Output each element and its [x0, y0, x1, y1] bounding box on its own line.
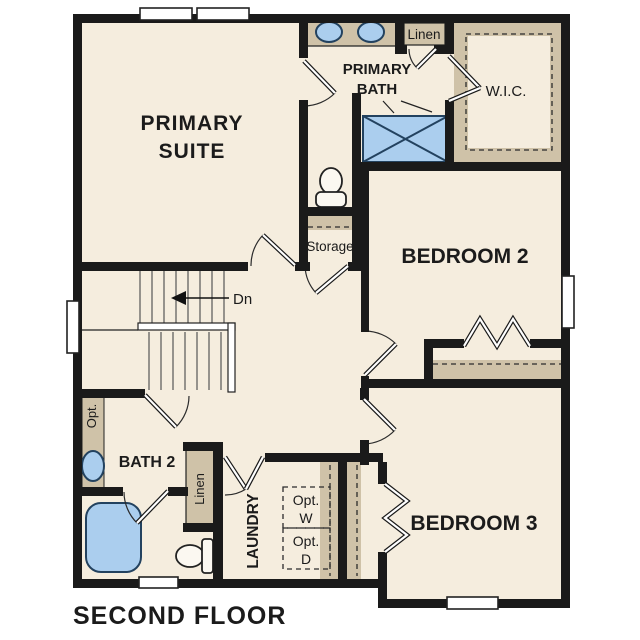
- stair-railing-top: [138, 323, 235, 330]
- wic-label: W.I.C.: [486, 83, 527, 100]
- laundry-label: LAUNDRY: [245, 493, 262, 569]
- linen-top-label: Linen: [407, 27, 440, 42]
- shower: [363, 116, 448, 162]
- window-stair-landing: [67, 301, 79, 353]
- laundry-shelf: [320, 462, 338, 579]
- storage-shelf: [308, 216, 352, 230]
- window-bedroom3: [447, 597, 498, 609]
- primary-bath-label-line1: PRIMARY: [343, 61, 412, 78]
- primary-suite-label-line2: SUITE: [159, 140, 226, 163]
- primary-bath-label-line2: BATH: [357, 81, 398, 98]
- primary-bath-sink-right: [358, 22, 384, 42]
- floor-title: SECOND FLOOR: [73, 602, 286, 630]
- bath2-vanity-opt-label: Opt.: [84, 404, 99, 429]
- stair-railing-side: [228, 323, 235, 392]
- bedroom2-closet-shelf: [433, 360, 561, 379]
- optional-dryer-label-line2: D: [301, 551, 311, 567]
- bedroom3-closet-shelf: [347, 462, 361, 579]
- stairs-down-label: Dn: [233, 291, 252, 308]
- linen-hall-label: Linen: [192, 473, 207, 505]
- primary-bath-sink-left: [316, 22, 342, 42]
- bath2-sink: [82, 451, 104, 481]
- window-top-right: [197, 8, 249, 20]
- optional-washer-label-line2: W: [299, 510, 313, 526]
- window-bedroom2: [562, 276, 574, 328]
- bedroom2-label: BEDROOM 2: [401, 245, 528, 268]
- floor-plan: PRIMARY SUITE PRIMARY BATH Linen W.I.C. …: [0, 0, 640, 640]
- bedroom3-label: BEDROOM 3: [410, 512, 537, 535]
- storage-label: Storage: [306, 239, 353, 254]
- bath2-label: BATH 2: [119, 454, 176, 471]
- optional-dryer-label-line1: Opt.: [293, 533, 319, 549]
- window-top-left: [140, 8, 192, 20]
- primary-suite-label-line1: PRIMARY: [140, 112, 243, 135]
- bathtub: [86, 503, 141, 572]
- optional-washer-label-line1: Opt.: [293, 492, 319, 508]
- window-bath2: [139, 577, 178, 588]
